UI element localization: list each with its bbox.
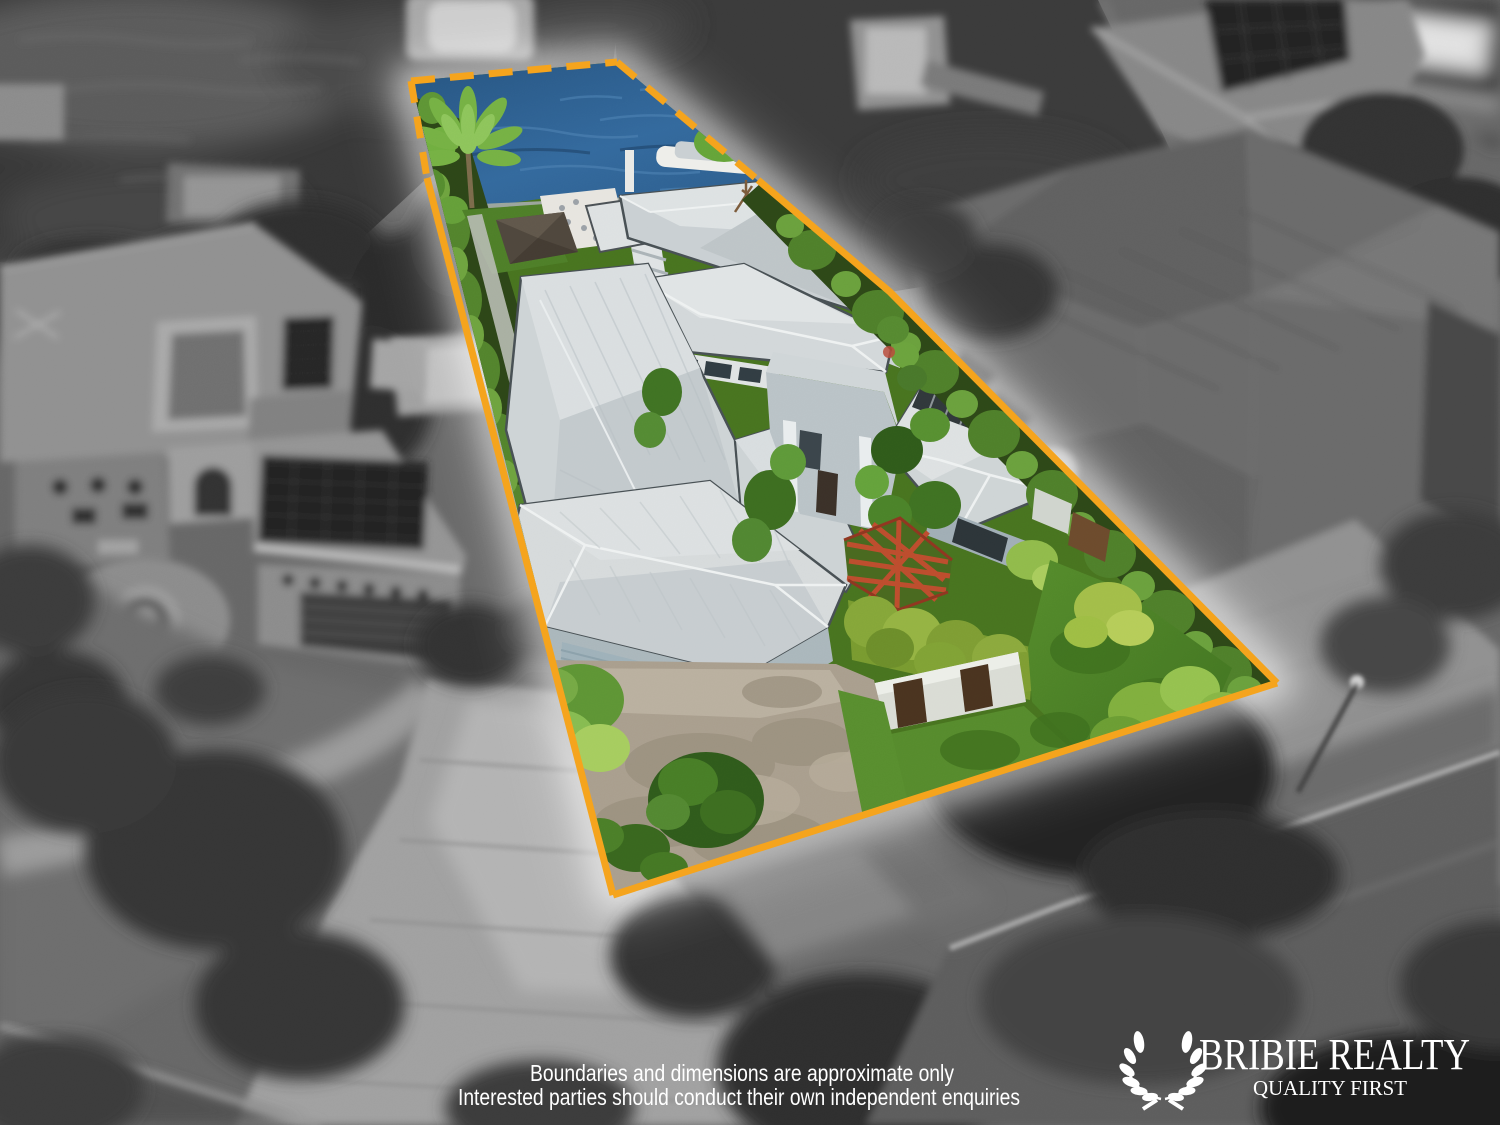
svg-text:BRIBIE REALTY: BRIBIE REALTY (1199, 1030, 1470, 1079)
svg-text:Boundaries and dimensions are: Boundaries and dimensions are approximat… (530, 1060, 954, 1086)
svg-text:Interested parties should cond: Interested parties should conduct their … (458, 1084, 1020, 1110)
svg-text:QUALITY FIRST: QUALITY FIRST (1253, 1076, 1407, 1100)
